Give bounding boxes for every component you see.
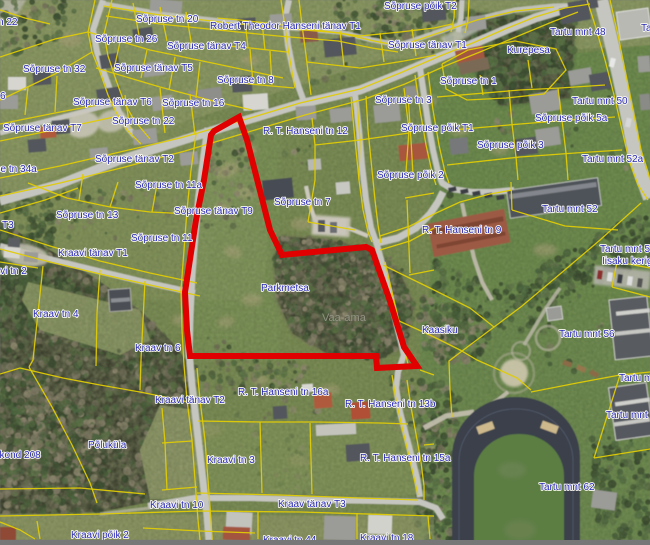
svg-text:R. T. Hanseni tn 16a: R. T. Hanseni tn 16a <box>238 387 329 398</box>
svg-text:R. T. Hanseni tn 12: R. T. Hanseni tn 12 <box>263 126 348 137</box>
svg-text:Sõpruse tänav T1: Sõpruse tänav T1 <box>388 40 467 51</box>
svg-text:Sõpruse tänav T9: Sõpruse tänav T9 <box>174 206 253 217</box>
svg-text:6: 6 <box>0 91 6 102</box>
svg-text:Sõpruse tänav T4: Sõpruse tänav T4 <box>167 41 246 52</box>
svg-text:Sõpruse põik T2: Sõpruse põik T2 <box>384 1 457 12</box>
svg-text:Sõpruse tn 11a: Sõpruse tn 11a <box>135 180 203 191</box>
svg-text:Kraavi tn 18: Kraavi tn 18 <box>360 533 414 540</box>
svg-text:Iisaku kerig: Iisaku kerig <box>602 256 650 267</box>
svg-text:Kurepesa: Kurepesa <box>507 45 550 56</box>
svg-text:Sõpruse põik T1: Sõpruse põik T1 <box>401 123 474 134</box>
svg-text:Tartu mnt 5: Tartu mnt 5 <box>600 244 650 255</box>
svg-text:Tartu mnt 62: Tartu mnt 62 <box>539 482 595 493</box>
svg-text:Sõpruse põik 5a: Sõpruse põik 5a <box>535 113 608 124</box>
svg-text:Kraavi tn 2: Kraavi tn 2 <box>0 266 27 277</box>
svg-text:Kraavi tänav T1: Kraavi tänav T1 <box>58 248 128 259</box>
svg-text:Sõpruse tn 7: Sõpruse tn 7 <box>274 197 331 208</box>
svg-text:ükond 208: ükond 208 <box>0 450 41 461</box>
svg-text:Sõpruse tn 3: Sõpruse tn 3 <box>375 95 432 106</box>
svg-text:Sõpruse põik 3: Sõpruse põik 3 <box>477 140 544 151</box>
svg-text:Sõpruse tänav T5: Sõpruse tänav T5 <box>114 63 193 74</box>
svg-text:Sõpruse tn 32: Sõpruse tn 32 <box>23 64 86 75</box>
svg-text:Kraavi tn 3: Kraavi tn 3 <box>207 455 255 466</box>
svg-text:Sõpruse põik 2: Sõpruse põik 2 <box>377 170 444 181</box>
svg-text:Vaa-ama: Vaa-ama <box>322 312 367 324</box>
svg-text:Sõpruse tn 11: Sõpruse tn 11 <box>131 233 193 244</box>
svg-text:n 22: n 22 <box>0 17 18 28</box>
svg-text:Sõpruse tänav T6: Sõpruse tänav T6 <box>73 97 152 108</box>
svg-text:use tn 34a: use tn 34a <box>0 164 37 175</box>
svg-text:R. T. Hanseni tn 13b: R. T. Hanseni tn 13b <box>345 399 436 410</box>
svg-text:Põluküla: Põluküla <box>88 440 127 451</box>
svg-text:Sõpruse tn 8: Sõpruse tn 8 <box>217 75 274 86</box>
svg-text:Sõpruse tn 22: Sõpruse tn 22 <box>112 116 175 127</box>
svg-text:Sõpruse tänav T7: Sõpruse tänav T7 <box>3 123 82 134</box>
svg-text:R. T. Hanseni tn 9: R. T. Hanseni tn 9 <box>422 225 502 236</box>
svg-text:Tartu mnt 50: Tartu mnt 50 <box>572 96 628 107</box>
svg-text:Kraavi tn 44: Kraavi tn 44 <box>263 535 317 540</box>
svg-text:Kraav tn 6: Kraav tn 6 <box>135 343 181 354</box>
svg-text:R. T. Hanseni tn 15a: R. T. Hanseni tn 15a <box>360 453 451 464</box>
svg-text:Tartu mnt 52: Tartu mnt 52 <box>542 204 598 215</box>
svg-text:Kraavi tn 10: Kraavi tn 10 <box>150 500 204 511</box>
svg-text:Kraavi tänav T2: Kraavi tänav T2 <box>155 395 225 406</box>
svg-text:Tartu mnt 52a: Tartu mnt 52a <box>582 154 644 165</box>
svg-text:Kraav tn 4: Kraav tn 4 <box>33 309 79 320</box>
svg-text:Kaasiku: Kaasiku <box>422 325 458 336</box>
svg-text:Kraav tänav T3: Kraav tänav T3 <box>278 499 346 510</box>
svg-text:Sõpruse tänav T2: Sõpruse tänav T2 <box>95 154 174 165</box>
svg-text:Parkmetsa: Parkmetsa <box>261 283 309 294</box>
svg-text:Tartu mnt 48: Tartu mnt 48 <box>550 27 606 38</box>
svg-text:Tartu mnt 5: Tartu mnt 5 <box>606 410 650 421</box>
svg-text:Tartu: Tartu <box>641 23 650 34</box>
svg-text:Kraavi põik 2: Kraavi põik 2 <box>71 530 129 540</box>
svg-text:Robert Theodor Hanseni tänav T: Robert Theodor Hanseni tänav T1 <box>210 21 361 32</box>
svg-text:T3: T3 <box>2 220 14 231</box>
svg-text:Tartu mnt 56: Tartu mnt 56 <box>559 329 615 340</box>
svg-text:Sõpruse tn 13: Sõpruse tn 13 <box>56 210 119 221</box>
svg-text:Sõpruse tn 26: Sõpruse tn 26 <box>95 34 158 45</box>
svg-text:Sõpruse tn 20: Sõpruse tn 20 <box>136 14 199 25</box>
svg-text:Sõpruse tn 16: Sõpruse tn 16 <box>162 98 225 109</box>
svg-text:Tartu mn: Tartu mn <box>619 373 650 384</box>
svg-text:Sõpruse tn 1: Sõpruse tn 1 <box>440 76 497 87</box>
